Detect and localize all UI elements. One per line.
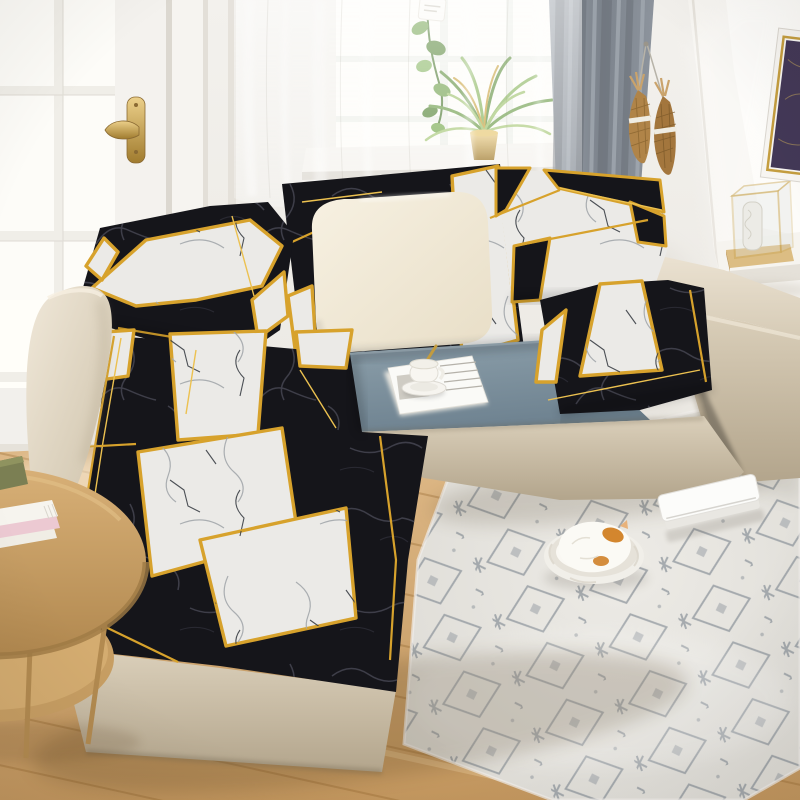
photo-vignette: [0, 0, 800, 800]
living-room-photo: Living room with L-shaped sectional sofa…: [0, 0, 800, 800]
